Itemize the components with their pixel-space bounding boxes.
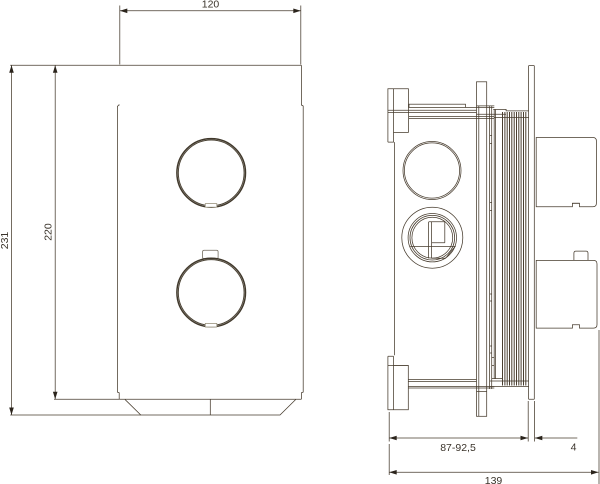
svg-text:4: 4 <box>571 441 577 453</box>
svg-text:231: 231 <box>0 232 11 250</box>
svg-text:120: 120 <box>202 0 220 10</box>
svg-text:87-92,5: 87-92,5 <box>440 442 476 454</box>
svg-text:139: 139 <box>485 475 503 484</box>
svg-text:220: 220 <box>43 223 55 241</box>
